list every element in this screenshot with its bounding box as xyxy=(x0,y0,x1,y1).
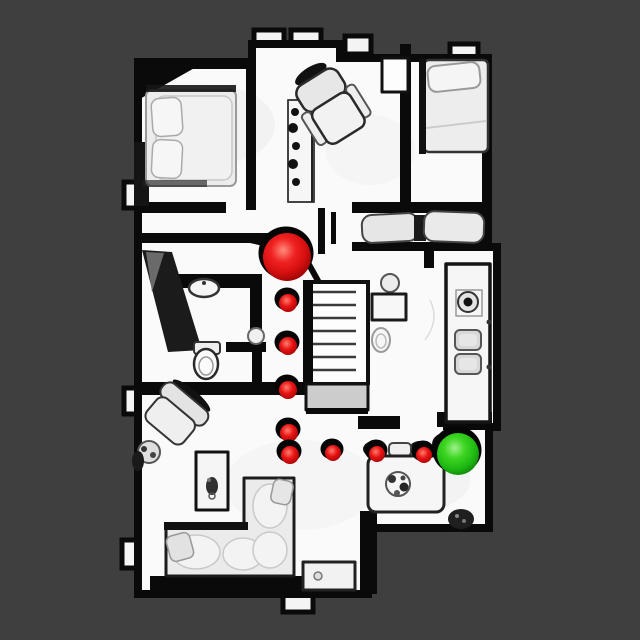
shelf-object xyxy=(288,123,298,133)
centerpiece xyxy=(401,476,406,481)
pillow xyxy=(151,139,183,179)
waypoint-dot xyxy=(279,294,297,312)
shelf-object xyxy=(291,108,299,116)
faucet xyxy=(202,281,206,285)
vanity xyxy=(372,294,406,320)
wall-living-bottom xyxy=(150,576,305,592)
table-decor-dot xyxy=(207,478,211,482)
pillow xyxy=(427,61,481,92)
sofa-shadow xyxy=(164,522,248,530)
wall-living-dining xyxy=(360,511,377,594)
fixture xyxy=(248,328,264,344)
stair-landing-rim xyxy=(306,408,368,414)
goal-sphere xyxy=(437,433,479,475)
start-sphere xyxy=(263,233,311,281)
stair-frame xyxy=(306,282,368,384)
stair-rail-left xyxy=(303,280,313,386)
sink-basin-inner xyxy=(459,358,477,370)
plant-shadow xyxy=(132,451,144,471)
wall-bath-right-upper xyxy=(250,274,262,336)
waypoint-dot xyxy=(280,424,298,442)
sink-basin-inner xyxy=(459,334,477,346)
stove-burner-center xyxy=(464,298,473,307)
shelf-object xyxy=(288,159,298,169)
stool xyxy=(448,509,474,529)
closet-nook xyxy=(382,58,408,92)
fireplace-hearth xyxy=(303,562,355,590)
rail-post xyxy=(318,208,325,254)
plant-leaf xyxy=(141,446,147,452)
waypoint-dot xyxy=(281,446,299,464)
shelf-object xyxy=(292,178,300,186)
wall-bed1-bottom xyxy=(138,202,226,213)
pillow xyxy=(151,97,184,137)
knob xyxy=(487,365,492,370)
stair-landing xyxy=(306,384,368,410)
bed-shadow xyxy=(146,85,236,92)
wall-dining-top-left xyxy=(358,416,400,429)
shelf-object xyxy=(292,142,300,150)
storage-room xyxy=(361,211,484,243)
waypoint-dot xyxy=(279,381,297,399)
cushion xyxy=(361,213,418,244)
sofa-pillow xyxy=(270,478,295,506)
waypoint-dot xyxy=(279,337,297,355)
cushion xyxy=(423,211,484,243)
centerpiece xyxy=(400,483,409,492)
stool-speckle xyxy=(462,519,466,523)
sofa-cushion xyxy=(253,532,287,568)
dining-chair-white xyxy=(389,443,411,456)
stool-speckle xyxy=(455,514,459,518)
wall-bed1-right xyxy=(246,60,256,210)
knob xyxy=(487,320,492,325)
bay-window xyxy=(345,36,371,54)
wall-top-thick xyxy=(138,58,256,69)
hearth-detail xyxy=(314,572,322,580)
waypoint-dot xyxy=(416,447,432,463)
centerpiece xyxy=(394,490,400,496)
waypoint-dot xyxy=(369,446,385,462)
scene-canvas xyxy=(0,0,640,640)
bed-shadow xyxy=(419,58,426,154)
wall-storage-top xyxy=(352,202,492,213)
round-fixture xyxy=(381,274,399,292)
wall-kitchen-stub xyxy=(424,246,434,268)
waypoint-dot xyxy=(325,445,341,461)
bed-shadow xyxy=(143,180,207,187)
rail-post xyxy=(331,212,336,244)
plant-leaf xyxy=(150,452,156,458)
centerpiece xyxy=(388,475,396,483)
staircase xyxy=(303,280,368,414)
wall-hall-south xyxy=(140,233,268,243)
